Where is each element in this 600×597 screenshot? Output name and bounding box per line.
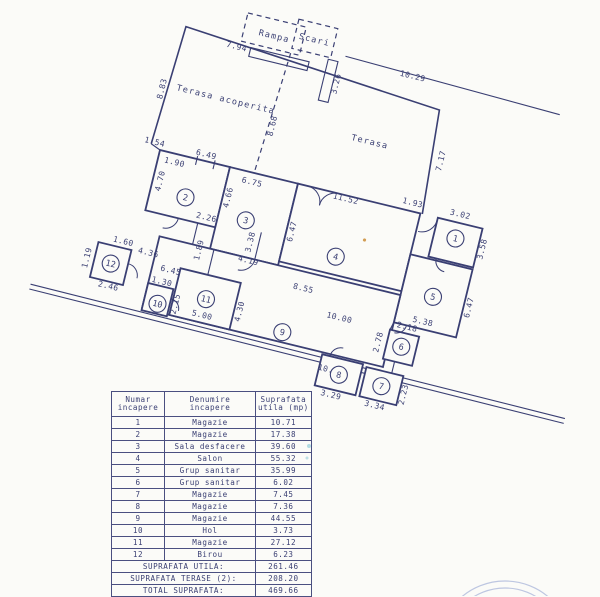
cell-name: Birou (165, 549, 256, 561)
cell-area: 7.36 (256, 501, 312, 513)
total-utila-label: SUPRAFATA UTILA: (112, 561, 256, 573)
table-row: 5Grup sanitar35.99 (112, 465, 312, 477)
wall-stub (392, 362, 395, 374)
table-row: 3Sala desfacere39.60 (112, 441, 312, 453)
cell-num: 8 (112, 501, 165, 513)
table-row: 7Magazie7.45 (112, 489, 312, 501)
cell-area: 27.12 (256, 537, 312, 549)
stamp: ADMINISTRATIA (438, 581, 572, 596)
dim-3-26: 3.26 (329, 73, 343, 95)
cell-num: 10 (112, 525, 165, 537)
cell-area: 6.02 (256, 477, 312, 489)
total-utila-value: 261.46 (256, 561, 312, 573)
cell-num: 7 (112, 489, 165, 501)
stamp-inner-circle (445, 588, 565, 596)
cell-area: 7.45 (256, 489, 312, 501)
total-suprafata-value: 469.66 (256, 585, 312, 597)
dim-7-17: 7.17 (434, 150, 448, 172)
total-row-total: TOTAL SUPRAFATA:469.66 (112, 585, 312, 597)
table-row: 12Birou6.23 (112, 549, 312, 561)
table-row: 1Magazie10.71 (112, 417, 312, 429)
cell-num: 4 (112, 453, 165, 465)
terasa-label: Terasa (350, 133, 389, 152)
cell-num: 2 (112, 429, 165, 441)
table-row: 11Magazie27.12 (112, 537, 312, 549)
total-row-terase: SUPRAFATA TERASE (2):208.20 (112, 573, 312, 585)
cell-num: 12 (112, 549, 165, 561)
dimension-line-10-29 (344, 56, 561, 114)
cell-name: Magazie (165, 429, 256, 441)
table-row: 10Hol3.73 (112, 525, 312, 537)
header-suprafata-line2: utila (mp) (258, 404, 309, 412)
cell-area: 44.55 (256, 513, 312, 525)
header-denumire-line2: incapere (167, 404, 253, 412)
cell-area: 3.73 (256, 525, 312, 537)
terasa-acoperita-label: Terasa acoperita (175, 83, 276, 117)
header-numar: Numar incapere (112, 392, 165, 417)
scari-label: Scari (298, 32, 331, 49)
rampa-label: Rampa (258, 28, 291, 45)
cell-name: Magazie (165, 501, 256, 513)
cell-num: 6 (112, 477, 165, 489)
cell-area: 39.60 (256, 441, 312, 453)
cell-name: Magazie (165, 417, 256, 429)
header-denumire: Denumire incapere (165, 392, 256, 417)
header-suprafata: Suprafata utila (mp) (256, 392, 312, 417)
cell-name: Magazie (165, 513, 256, 525)
cell-num: 9 (112, 513, 165, 525)
rotated-plan-group: Rampa Scari Terasa acoperita Terasa 7.94… (21, 0, 600, 454)
dim-10-29: 10.29 (399, 69, 426, 84)
cell-area: 55.32 (256, 453, 312, 465)
cell-name: Magazie (165, 537, 256, 549)
total-row-utila: SUPRAFATA UTILA:261.46 (112, 561, 312, 573)
table-row: 8Magazie7.36 (112, 501, 312, 513)
total-terase-value: 208.20 (256, 573, 312, 585)
dim-8-68: 8.68 (266, 115, 280, 137)
total-terase-label: SUPRAFATA TERASE (2): (112, 573, 256, 585)
dim-3-02: 3.02 (449, 208, 471, 222)
cell-name: Hol (165, 525, 256, 537)
cell-area: 17.38 (256, 429, 312, 441)
table-row: 9Magazie44.55 (112, 513, 312, 525)
cell-area: 6.23 (256, 549, 312, 561)
cell-num: 3 (112, 441, 165, 453)
cell-num: 11 (112, 537, 165, 549)
cell-name: Grup sanitar (165, 477, 256, 489)
cell-area: 35.99 (256, 465, 312, 477)
dim-1-93: 1.93 (401, 196, 423, 210)
table-row: 6Grup sanitar6.02 (112, 477, 312, 489)
cell-num: 5 (112, 465, 165, 477)
rooms-area-table: Numar incapere Denumire incapere Suprafa… (111, 391, 312, 597)
cell-name: Salon (165, 453, 256, 465)
cell-area: 10.71 (256, 417, 312, 429)
table-row: 4Salon55.32 (112, 453, 312, 465)
header-numar-line2: incapere (114, 404, 162, 412)
scanned-floor-plan-page: { "colors": { "ink": "#3a3f73", "paper":… (0, 0, 600, 596)
dim-1-19: 1.19 (80, 247, 94, 269)
table-header-row: Numar incapere Denumire incapere Suprafa… (112, 392, 312, 417)
cell-name: Grup sanitar (165, 465, 256, 477)
cell-num: 1 (112, 417, 165, 429)
table-row: 2Magazie17.38 (112, 429, 312, 441)
cell-name: Magazie (165, 489, 256, 501)
total-suprafata-label: TOTAL SUPRAFATA: (112, 585, 256, 597)
cell-name: Sala desfacere (165, 441, 256, 453)
